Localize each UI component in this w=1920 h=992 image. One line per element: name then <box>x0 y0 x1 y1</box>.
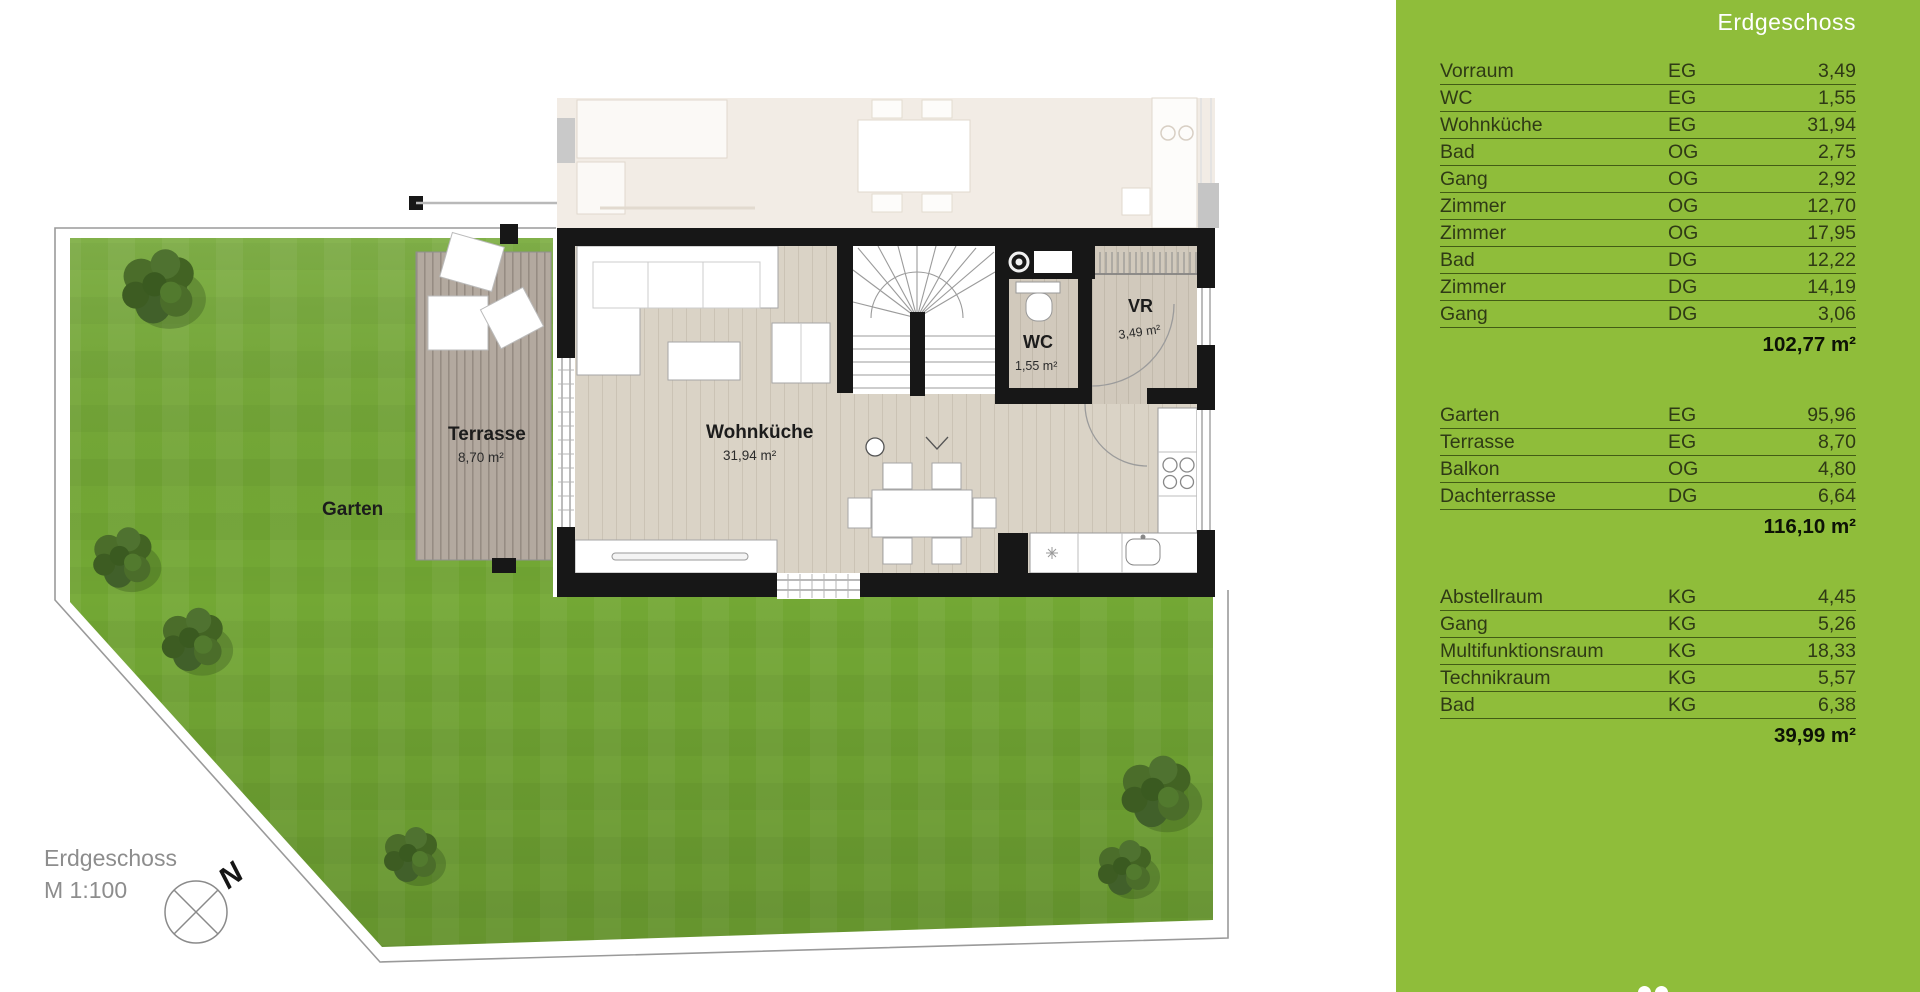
cell-name: Zimmer <box>1440 195 1668 218</box>
terrace-table <box>428 296 488 350</box>
cell-level: EG <box>1668 404 1752 427</box>
wall-bottom <box>860 573 998 597</box>
compass-icon: N <box>165 855 251 943</box>
table-row: MultifunktionsraumKG18,33 <box>1440 638 1856 665</box>
cell-name: Multifunktionsraum <box>1440 640 1668 663</box>
wall-right <box>1197 228 1215 288</box>
wall-bottom <box>557 573 777 597</box>
coffee-table <box>668 342 740 380</box>
cell-value: 12,70 <box>1752 195 1856 218</box>
table-row: DachterrasseDG6,64 <box>1440 483 1856 510</box>
cell-level: KG <box>1668 586 1752 609</box>
wall-stair <box>837 246 853 393</box>
faucet <box>1141 535 1146 540</box>
wall-vr-bottom <box>1147 388 1197 404</box>
table-row: GangKG5,26 <box>1440 611 1856 638</box>
vr-label: VR <box>1128 296 1153 316</box>
cell-name: Garten <box>1440 404 1668 427</box>
cell-name: Technikraum <box>1440 667 1668 690</box>
area-table: VorraumEG3,49WCEG1,55WohnkücheEG31,94Bad… <box>1440 58 1856 793</box>
cell-value: 4,45 <box>1752 586 1856 609</box>
cell-level: EG <box>1668 60 1752 83</box>
cell-name: Bad <box>1440 249 1668 272</box>
table-row: GangDG3,06 <box>1440 301 1856 328</box>
table-row: BadDG12,22 <box>1440 247 1856 274</box>
terrace-label: Terrasse <box>448 424 526 445</box>
cell-name: Terrasse <box>1440 431 1668 454</box>
chair <box>848 498 871 528</box>
cell-value: 8,70 <box>1752 431 1856 454</box>
cell-name: WC <box>1440 87 1668 110</box>
cell-value: 5,26 <box>1752 613 1856 636</box>
sink <box>1126 539 1160 565</box>
cell-name: Wohnküche <box>1440 114 1668 137</box>
logo-dot <box>1655 986 1668 992</box>
cell-value: 12,22 <box>1752 249 1856 272</box>
table-row: BalkonOG4,80 <box>1440 456 1856 483</box>
table-row: AbstellraumKG4,45 <box>1440 584 1856 611</box>
table-row: GartenEG95,96 <box>1440 402 1856 429</box>
logo-dot <box>1638 986 1651 992</box>
wall-bottom <box>1028 573 1215 597</box>
cell-value: 3,49 <box>1752 60 1856 83</box>
wc-area: 1,55 m² <box>1015 359 1057 373</box>
cell-level: EG <box>1668 114 1752 137</box>
cell-name: Gang <box>1440 303 1668 326</box>
cell-name: Zimmer <box>1440 276 1668 299</box>
cell-level: OG <box>1668 195 1752 218</box>
cell-value: 4,80 <box>1752 458 1856 481</box>
column-symbol <box>866 438 884 456</box>
cell-name: Bad <box>1440 694 1668 717</box>
cell-level: KG <box>1668 667 1752 690</box>
cell-level: OG <box>1668 222 1752 245</box>
sidebar-title: Erdgeschoss <box>1718 9 1856 36</box>
wc-label: WC <box>1023 332 1053 352</box>
cell-level: DG <box>1668 249 1752 272</box>
chair <box>883 463 912 489</box>
cell-level: OG <box>1668 141 1752 164</box>
table-row: VorraumEG3,49 <box>1440 58 1856 85</box>
tv <box>612 553 748 560</box>
terrace-area: 8,70 m² <box>458 450 504 465</box>
cell-level: DG <box>1668 303 1752 326</box>
group-total: 116,10 m² <box>1440 510 1856 542</box>
cell-name: Gang <box>1440 168 1668 191</box>
wall-stub <box>500 224 518 244</box>
wall-right <box>1197 530 1215 597</box>
table-row: ZimmerOG17,95 <box>1440 220 1856 247</box>
cell-value: 2,92 <box>1752 168 1856 191</box>
cell-level: DG <box>1668 276 1752 299</box>
scale-label: M 1:100 <box>44 877 127 903</box>
cell-name: Gang <box>1440 613 1668 636</box>
cell-value: 17,95 <box>1752 222 1856 245</box>
area-group: GartenEG95,96TerrasseEG8,70BalkonOG4,80D… <box>1440 402 1856 542</box>
cell-name: Dachterrasse <box>1440 485 1668 508</box>
terrace: Terrasse 8,70 m² <box>409 196 557 573</box>
dining-table <box>872 490 972 537</box>
cell-level: DG <box>1668 485 1752 508</box>
wall-wc-bottom <box>995 388 1092 404</box>
cell-value: 5,57 <box>1752 667 1856 690</box>
wohnkueche-label: Wohnküche <box>706 422 813 443</box>
cell-value: 95,96 <box>1752 404 1856 427</box>
table-row: WohnkücheEG31,94 <box>1440 112 1856 139</box>
garden-label: Garten <box>322 499 383 520</box>
table-row: TerrasseEG8,70 <box>1440 429 1856 456</box>
table-row: GangOG2,92 <box>1440 166 1856 193</box>
cell-name: Vorraum <box>1440 60 1668 83</box>
group-total: 102,77 m² <box>1440 328 1856 360</box>
cell-value: 1,55 <box>1752 87 1856 110</box>
stair-newel-wall <box>910 312 925 396</box>
table-row: TechnikraumKG5,57 <box>1440 665 1856 692</box>
table-row: ZimmerOG12,70 <box>1440 193 1856 220</box>
washing-machine-icon <box>1016 259 1023 266</box>
table-row: ZimmerDG14,19 <box>1440 274 1856 301</box>
cell-level: OG <box>1668 458 1752 481</box>
chair <box>932 538 961 564</box>
logo-icon <box>1638 986 1668 992</box>
cell-level: EG <box>1668 87 1752 110</box>
chair <box>932 463 961 489</box>
table-row: BadOG2,75 <box>1440 139 1856 166</box>
wall-wc <box>1078 246 1092 404</box>
wall-top <box>557 228 1215 246</box>
wall-left <box>557 228 575 358</box>
group-total: 39,99 m² <box>1440 719 1856 751</box>
niche-shelf <box>1034 251 1072 273</box>
cell-level: OG <box>1668 168 1752 191</box>
wohnkueche-area: 31,94 m² <box>723 448 777 463</box>
cell-value: 31,94 <box>1752 114 1856 137</box>
area-sidebar: Erdgeschoss VorraumEG3,49WCEG1,55Wohnküc… <box>1396 0 1920 992</box>
cell-value: 6,38 <box>1752 694 1856 717</box>
plan-meta: Erdgeschoss M 1:100 N <box>44 845 251 943</box>
area-group: VorraumEG3,49WCEG1,55WohnkücheEG31,94Bad… <box>1440 58 1856 360</box>
cell-name: Zimmer <box>1440 222 1668 245</box>
cell-value: 3,06 <box>1752 303 1856 326</box>
floor-title: Erdgeschoss <box>44 845 177 871</box>
cell-level: EG <box>1668 431 1752 454</box>
cell-name: Balkon <box>1440 458 1668 481</box>
cell-value: 6,64 <box>1752 485 1856 508</box>
cell-name: Bad <box>1440 141 1668 164</box>
cell-level: KG <box>1668 613 1752 636</box>
floorplan-page: Garten Terrasse 8,70 m² <box>0 0 1920 992</box>
cell-name: Abstellraum <box>1440 586 1668 609</box>
building: Wohnküche 31,94 m² WC 1,55 m² VR 3,49 m² <box>557 228 1215 599</box>
wall-right <box>1197 345 1215 410</box>
table-row: WCEG1,55 <box>1440 85 1856 112</box>
neighbour-unit-ghost <box>557 98 1219 228</box>
wall-stub <box>492 558 516 573</box>
chair <box>973 498 996 528</box>
cell-value: 18,33 <box>1752 640 1856 663</box>
cell-value: 2,75 <box>1752 141 1856 164</box>
cell-level: KG <box>1668 694 1752 717</box>
area-group: AbstellraumKG4,45GangKG5,26Multifunktion… <box>1440 584 1856 751</box>
cell-value: 14,19 <box>1752 276 1856 299</box>
chair <box>883 538 912 564</box>
cell-level: KG <box>1668 640 1752 663</box>
wall-pier <box>998 533 1028 597</box>
table-row: BadKG6,38 <box>1440 692 1856 719</box>
